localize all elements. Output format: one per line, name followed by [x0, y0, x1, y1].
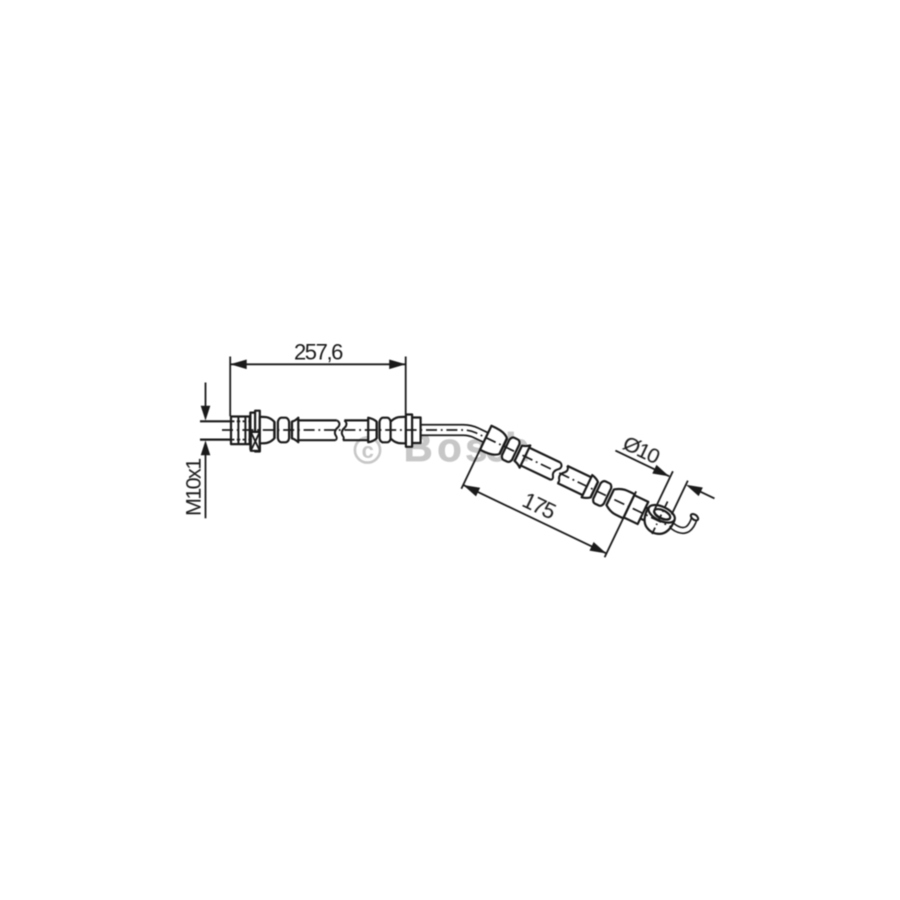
svg-text:257,6: 257,6	[294, 340, 343, 365]
svg-text:M10x1: M10x1	[182, 459, 206, 516]
